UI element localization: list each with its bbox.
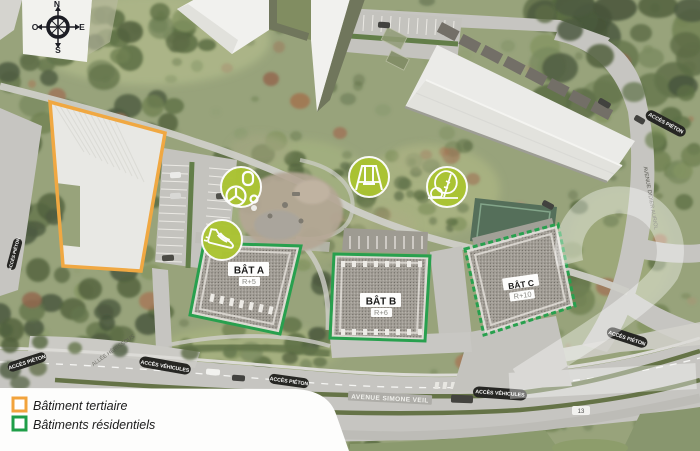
svg-text:Bâtiment tertiaire: Bâtiment tertiaire (33, 399, 128, 413)
svg-text:Bâtiments résidentiels: Bâtiments résidentiels (33, 418, 155, 432)
